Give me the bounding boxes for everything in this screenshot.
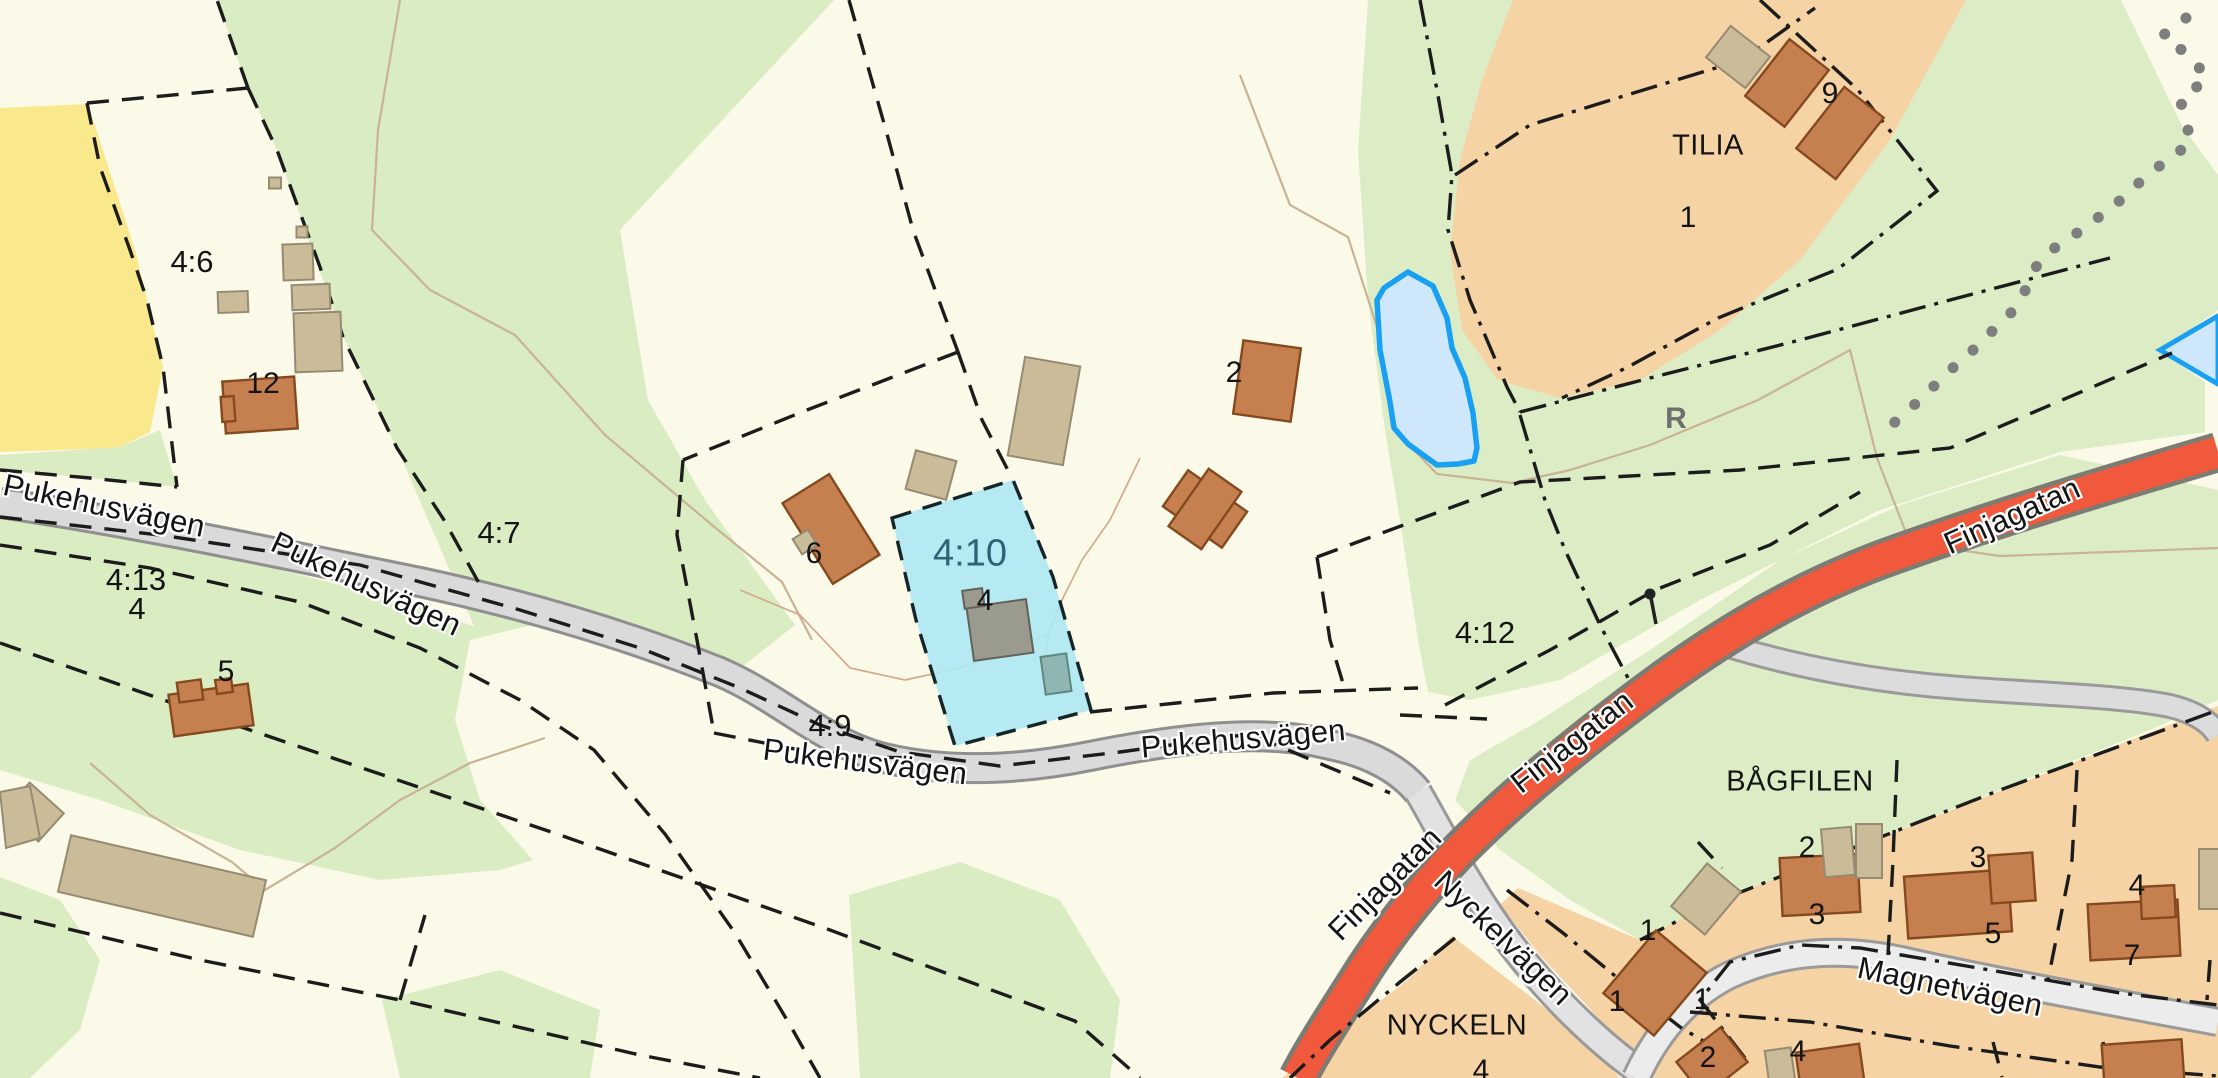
map-base-layer	[0, 0, 2218, 1078]
map-canvas[interactable]: 4:64:74:1344:94:124:10125642912335471112…	[0, 0, 2218, 1078]
